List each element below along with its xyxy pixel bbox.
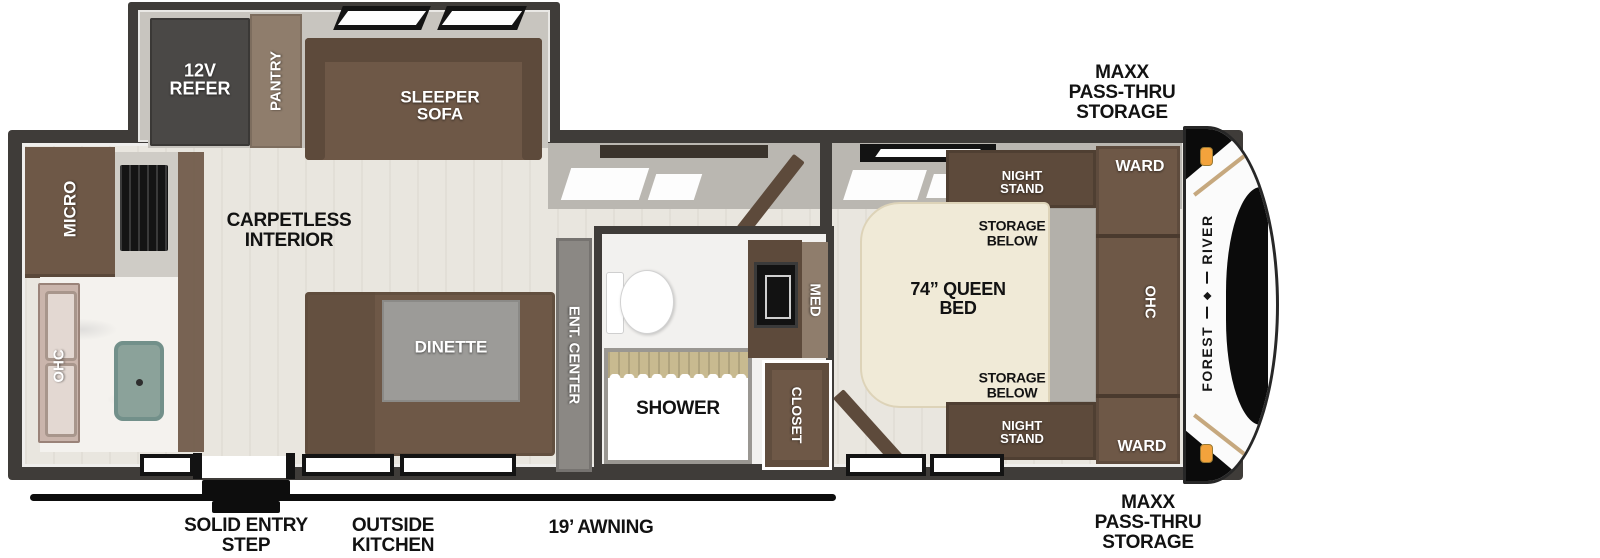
closet-label: CLOSET <box>790 387 804 444</box>
brand-word: FOREST <box>1199 326 1215 392</box>
queen-bed-label: 74” QUEEN BED <box>910 280 1005 318</box>
bedroom-ohc-label: OHC <box>1142 285 1157 318</box>
wardrobe-divider <box>1096 234 1180 238</box>
storage-below-top-label: STORAGE BELOW <box>979 218 1046 247</box>
pantry-label: PANTRY <box>268 51 283 111</box>
carpetless-interior-note: CARPETLESS INTERIOR <box>227 211 352 251</box>
solid-entry-step-label: SOLID ENTRY STEP <box>184 516 308 556</box>
entertainment-center-label: ENT. CENTER <box>566 306 581 404</box>
outside-kitchen-label: OUTSIDE KITCHEN <box>352 516 434 556</box>
shower-glass <box>608 374 748 386</box>
forest-river-logo-icon: ◆ <box>1202 291 1213 300</box>
slideout-window-icon <box>333 6 431 30</box>
wardrobe-bottom-label: WARD <box>1118 439 1167 455</box>
wardrobe-top-label: WARD <box>1116 159 1165 175</box>
windshield-icon <box>1226 187 1268 425</box>
hall-window-icon <box>561 168 649 200</box>
headboard <box>1046 206 1098 404</box>
wardrobe-column <box>1096 146 1180 464</box>
brand-mark: FOREST ◆ RIVER <box>1199 214 1215 391</box>
kitchen-cabinet-strip <box>178 152 204 452</box>
window-icon <box>302 454 394 476</box>
awning-label: 19’ AWNING <box>548 518 653 538</box>
kitchen-sink-icon <box>114 341 164 421</box>
front-cap <box>1183 126 1279 484</box>
microwave-label: MICRO <box>61 181 78 238</box>
shower-label: SHOWER <box>636 399 720 419</box>
brand-divider <box>1206 307 1208 319</box>
brand-divider <box>1206 272 1208 284</box>
slideout-window-icon <box>437 6 527 30</box>
sleeper-sofa-label: SLEEPER SOFA <box>400 89 479 124</box>
dinette-bench-back <box>305 292 375 456</box>
entry-step-lower <box>212 501 280 513</box>
range-cooktop-icon <box>120 165 168 251</box>
medicine-cabinet-label: MED <box>807 283 822 316</box>
awning-line <box>30 494 836 501</box>
refrigerator-label: 12V REFER <box>169 62 230 99</box>
window-icon <box>930 454 1004 476</box>
floorplan-canvas: 12V REFER PANTRY SLEEPER SOFA MICRO OHC … <box>0 0 1600 558</box>
dinette-label: DINETTE <box>415 338 488 355</box>
toilet-icon <box>620 270 674 334</box>
wardrobe-divider <box>1096 394 1180 398</box>
entry-door-opening <box>198 456 290 478</box>
bath-sink-icon <box>754 262 798 328</box>
entry-door-jamb <box>286 453 295 479</box>
marker-light-icon <box>1200 147 1213 166</box>
entry-door-jamb <box>193 453 202 479</box>
pass-thru-storage-top-label: MAXX PASS-THRU STORAGE <box>1069 63 1176 123</box>
brand-word: RIVER <box>1199 214 1215 264</box>
window-icon <box>400 454 516 476</box>
marker-light-icon <box>1200 444 1213 463</box>
hall-overhead-cabinet <box>600 145 768 158</box>
night-stand-bottom-label: NIGHT STAND <box>1000 419 1044 446</box>
window-icon <box>140 454 194 476</box>
sleeper-sofa-armrest <box>305 38 325 160</box>
storage-below-bottom-label: STORAGE BELOW <box>979 370 1046 399</box>
bedroom-wall-stub <box>820 143 832 231</box>
bedroom-window-icon <box>843 170 927 200</box>
sleeper-sofa-armrest <box>522 38 542 160</box>
kitchen-ohc-label: OHC <box>51 349 66 382</box>
sleeper-sofa-back <box>305 38 542 62</box>
window-icon <box>846 454 926 476</box>
pass-thru-storage-bottom-label: MAXX PASS-THRU STORAGE <box>1095 493 1202 553</box>
night-stand-top-label: NIGHT STAND <box>1000 169 1044 196</box>
hall-window-icon <box>648 174 702 200</box>
